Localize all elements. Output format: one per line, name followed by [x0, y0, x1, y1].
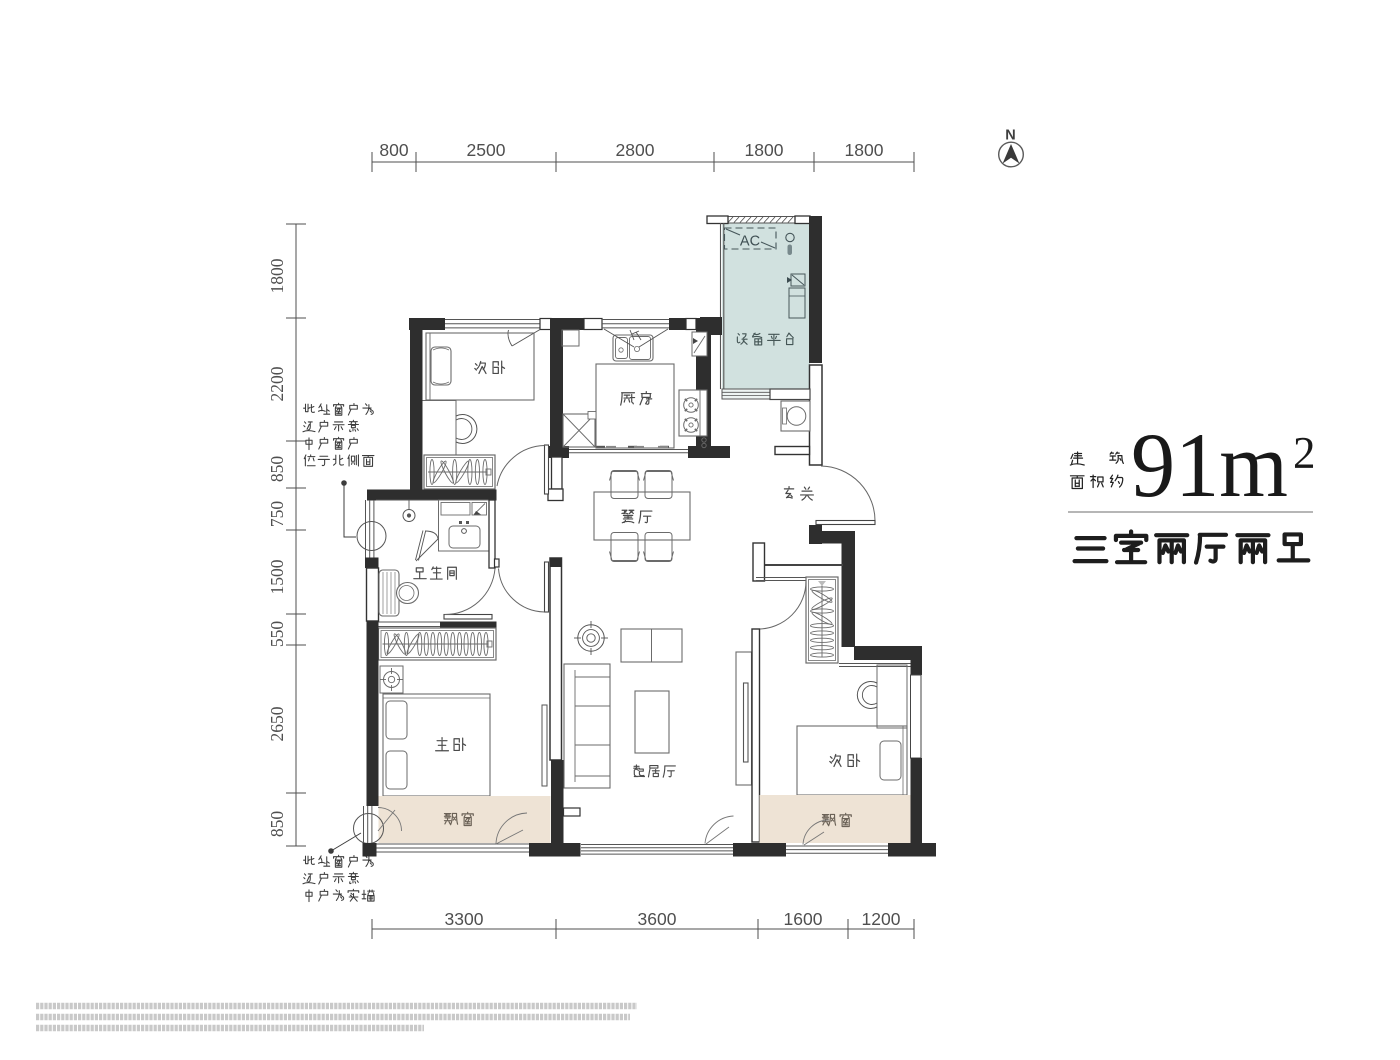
svg-text:1800: 1800: [267, 258, 287, 293]
svg-text:3300: 3300: [445, 909, 484, 929]
svg-text:850: 850: [267, 456, 287, 483]
svg-text:2500: 2500: [467, 140, 506, 160]
svg-text:3600: 3600: [638, 909, 677, 929]
svg-text:550: 550: [267, 621, 287, 648]
svg-text:750: 750: [267, 501, 287, 528]
svg-text:N: N: [1005, 128, 1015, 144]
svg-text:AC: AC: [740, 234, 760, 250]
svg-text:2650: 2650: [267, 706, 287, 741]
svg-text:1800: 1800: [745, 140, 784, 160]
svg-text:2800: 2800: [616, 140, 655, 160]
svg-text:1500: 1500: [267, 559, 287, 594]
svg-text:800: 800: [379, 140, 408, 160]
svg-text:2200: 2200: [267, 366, 287, 401]
svg-text:850: 850: [267, 811, 287, 838]
svg-text:2: 2: [1293, 428, 1316, 478]
svg-text:1800: 1800: [845, 140, 884, 160]
svg-text:1200: 1200: [862, 909, 901, 929]
svg-text:1600: 1600: [784, 909, 823, 929]
svg-text:91m: 91m: [1131, 414, 1288, 516]
